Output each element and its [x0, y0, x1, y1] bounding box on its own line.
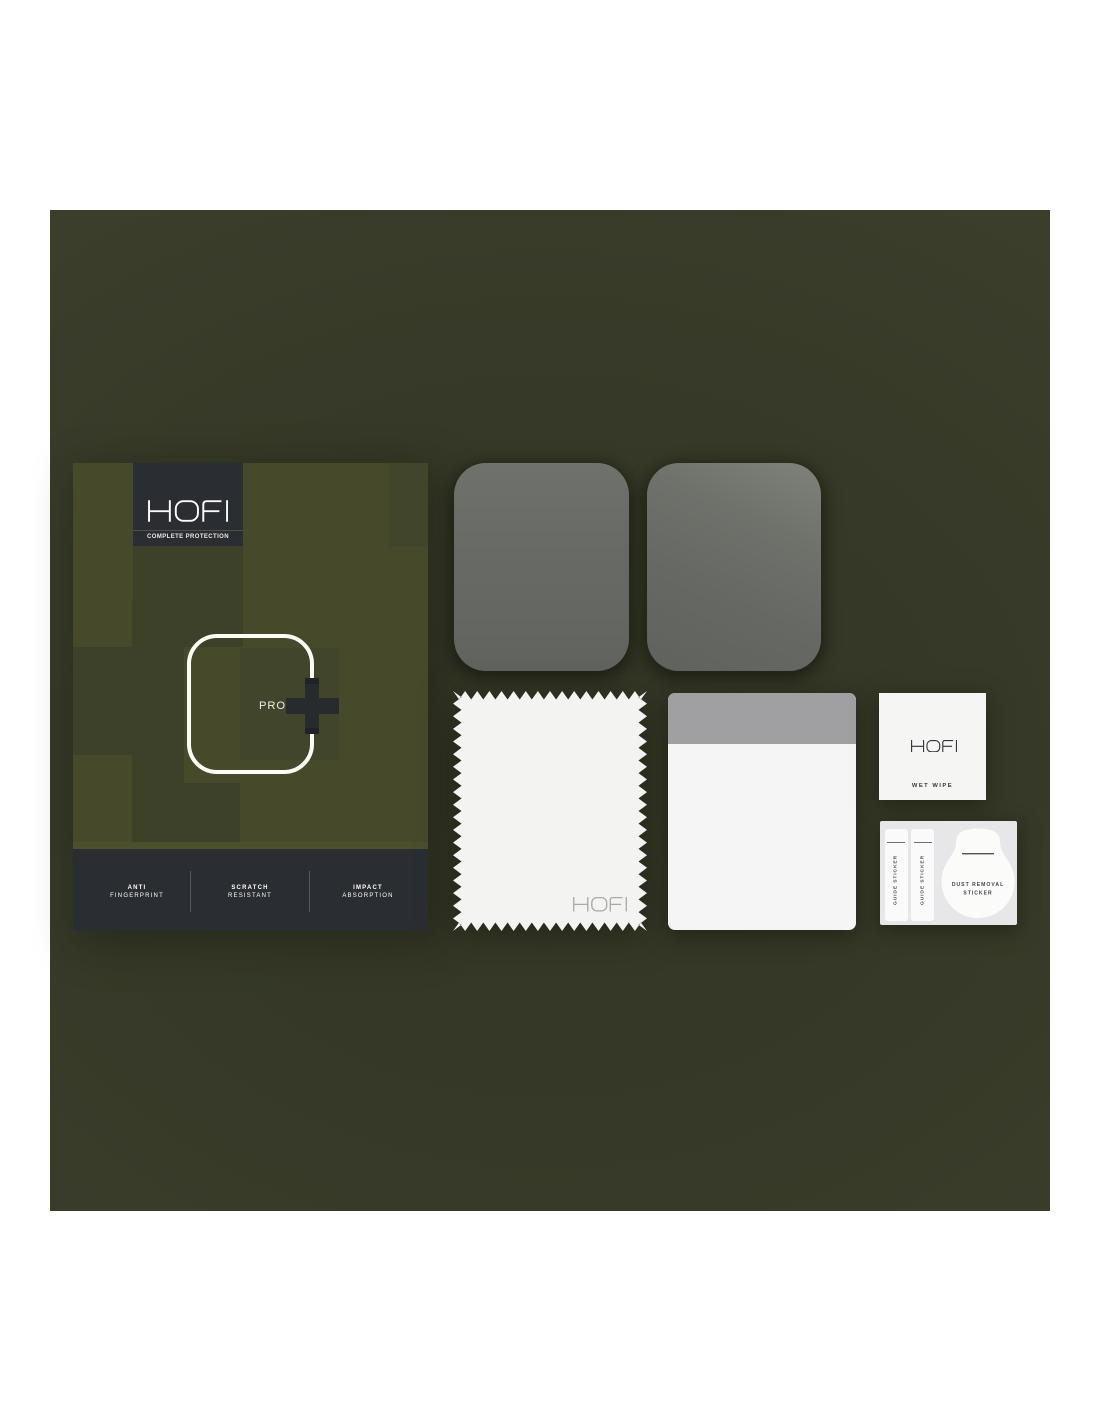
svg-text:STICKER: STICKER [963, 891, 992, 897]
svg-text:DUST REMOVAL: DUST REMOVAL [952, 882, 1004, 888]
